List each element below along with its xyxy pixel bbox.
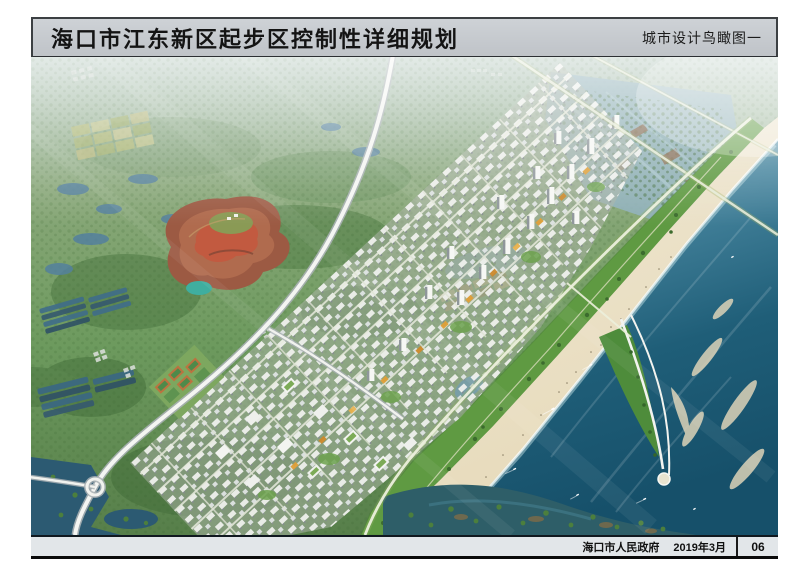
page-number: 06 [736, 537, 778, 556]
sheet-header: 海口市江东新区起步区控制性详细规划 城市设计鸟瞰图一 [31, 17, 778, 57]
footer-authority: 海口市人民政府 [582, 539, 659, 555]
footer-text: 海口市人民政府 2019年3月 [582, 537, 736, 556]
aerial-render [31, 57, 778, 535]
aerial-render-area [31, 57, 778, 535]
plan-sheet: 海口市江东新区起步区控制性详细规划 城市设计鸟瞰图一 [31, 17, 778, 559]
page-title: 海口市江东新区起步区控制性详细规划 [51, 22, 459, 54]
view-label: 城市设计鸟瞰图一 [642, 28, 762, 48]
footer-date: 2019年3月 [673, 539, 726, 555]
sheet-footer: 海口市人民政府 2019年3月 06 [31, 535, 778, 559]
